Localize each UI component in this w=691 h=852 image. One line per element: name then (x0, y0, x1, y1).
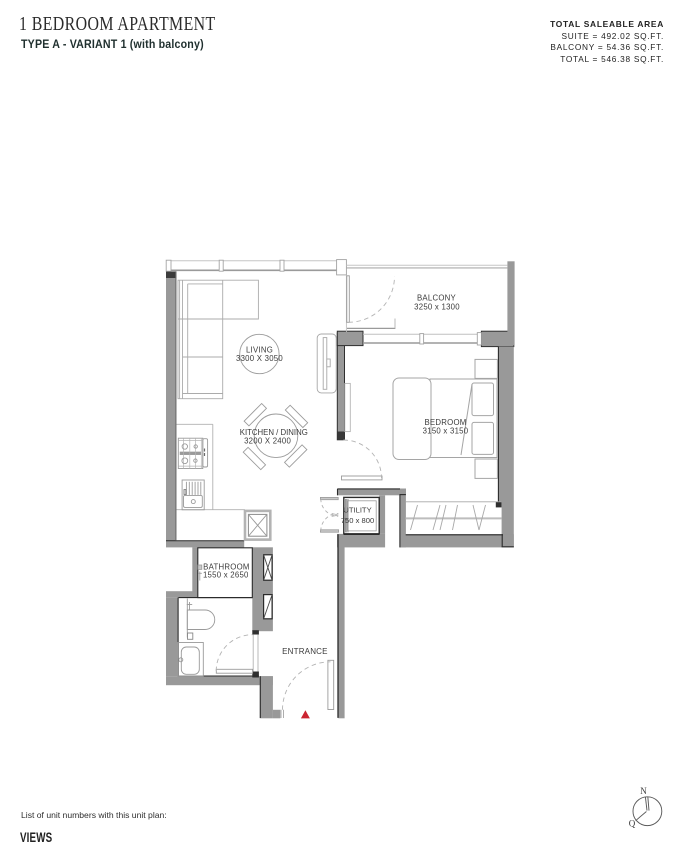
svg-text:1550 x 2650: 1550 x 2650 (203, 571, 249, 580)
svg-text:750 x 800: 750 x 800 (341, 516, 374, 525)
svg-text:Q: Q (629, 819, 636, 829)
svg-text:ENTRANCE: ENTRANCE (282, 647, 328, 656)
svg-text:3300 X 3050: 3300 X 3050 (236, 354, 283, 363)
svg-text:UTILITY: UTILITY (343, 505, 371, 514)
svg-text:3200 X 2400: 3200 X 2400 (244, 437, 291, 446)
svg-text:3250 x 1300: 3250 x 1300 (414, 303, 460, 312)
svg-text:KITCHEN / DINING: KITCHEN / DINING (240, 428, 308, 437)
svg-text:N: N (640, 786, 647, 796)
svg-text:BALCONY: BALCONY (417, 294, 457, 303)
svg-text:3150 x 3150: 3150 x 3150 (423, 427, 469, 436)
